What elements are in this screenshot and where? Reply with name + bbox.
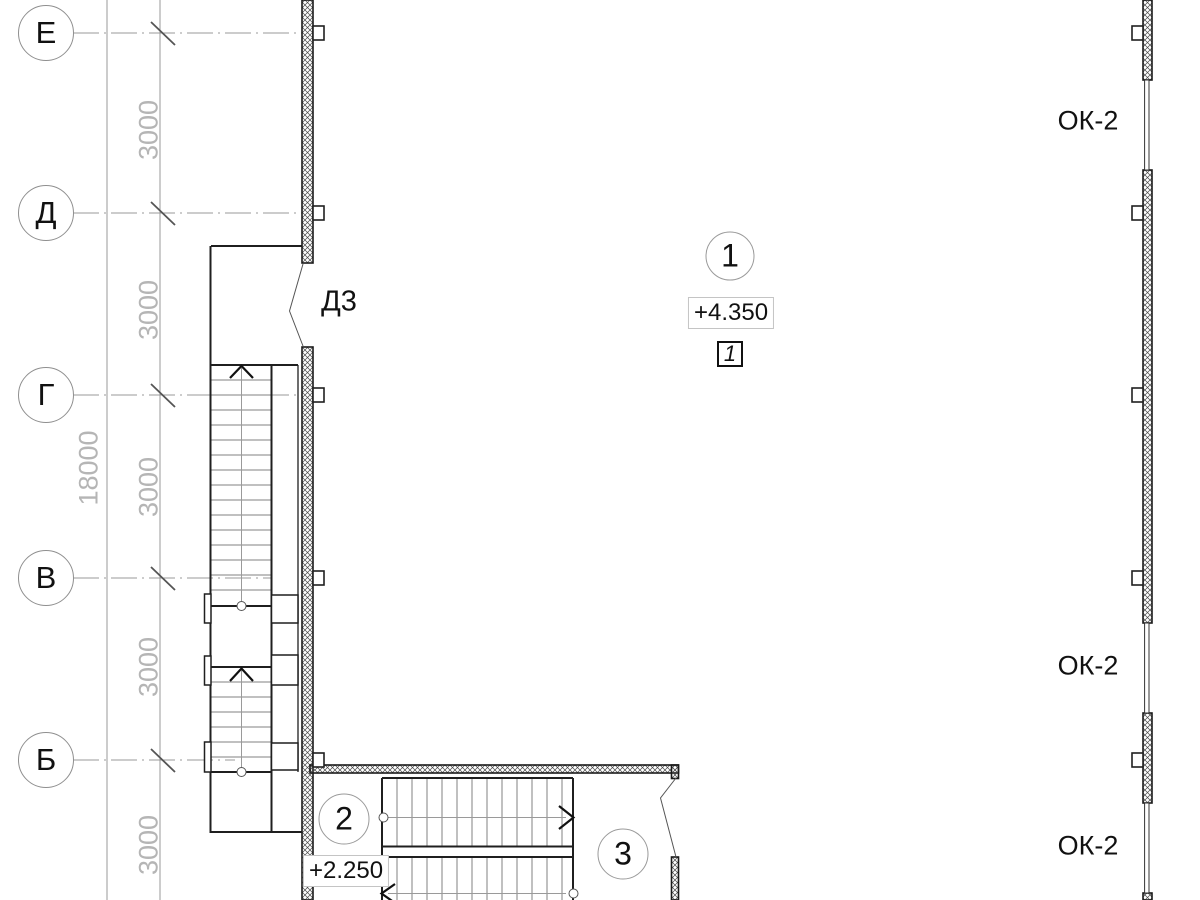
grid-axis-label: Б [36,742,56,778]
room-number: 1 [721,238,739,275]
bottom-wall-hook [672,765,679,779]
right-wall-seg1 [1143,0,1152,80]
level-mark: +2.250 [303,855,389,887]
level-mark: +4.350 [688,297,774,329]
left-wall-upper [302,0,313,263]
landing-pilaster [205,742,212,772]
stair-treads-layer [211,380,562,900]
grid-axis-bubble: Е [18,5,74,61]
grid-axis-bubble: В [18,550,74,606]
column-tab [1132,206,1143,220]
room-number-circle: 2 [319,794,370,845]
grid-axis-label: Е [36,15,57,51]
column-tab [313,753,324,767]
stair-pivot-circle [379,813,388,822]
landing-pilaster [272,595,299,623]
column-tab [313,206,324,220]
room-number: 2 [335,801,353,838]
right-wall-seg3 [1143,713,1152,803]
grid-axis-label: Г [38,377,55,413]
right-wall-seg2 [1143,170,1152,623]
window-glazing [1145,623,1149,713]
floor-plan-linework [0,0,1200,900]
window-glazing [1145,80,1149,170]
column-tab [1132,571,1143,585]
segment-dimension: 3000 [134,637,165,697]
grid-axis-bubble: Д [18,185,74,241]
outline-layer [205,246,574,900]
column-tab [313,26,324,40]
landing-pilaster [205,656,212,685]
landing-pilaster [272,743,299,770]
room-number: 3 [614,836,632,873]
symbols-layer [230,264,676,900]
window-label: ОК-2 [1058,651,1119,682]
stair-pivot-circle [237,768,246,777]
walls-layer [302,0,1152,900]
room-number-circle: 3 [598,829,649,880]
segment-dimension: 3000 [134,815,165,875]
landing-pilaster [272,655,299,685]
window-glazing [1145,803,1149,893]
stair-pivot-circle [569,889,578,898]
column-tab [1132,388,1143,402]
landing-pilaster [205,594,212,623]
left-wall-lower [302,347,313,900]
window-label: ОК-2 [1058,831,1119,862]
grid-axis-label: Д [36,195,57,231]
column-tab [1132,26,1143,40]
grid-axis-bubble: Б [18,732,74,788]
detail-mark: 1 [717,341,743,367]
total-dimension: 18000 [74,430,105,505]
column-tab [1132,753,1143,767]
segment-dimension: 3000 [134,457,165,517]
window-label: ОК-2 [1058,106,1119,137]
room-number-circle: 1 [706,232,755,281]
door-label: Д3 [321,286,357,319]
bottom-wall [310,765,679,773]
segment-dimension: 3000 [134,280,165,340]
grid-axis-bubble: Г [18,367,74,423]
column-tab [313,571,324,585]
column-tab [313,388,324,402]
stair-pivot-circle [237,602,246,611]
grid-axis-label: В [36,560,57,596]
door-d3-leaf [290,264,304,346]
right-wall-seg4 [1143,893,1152,900]
door-bottom-leaf [661,778,677,857]
segment-dimension: 3000 [134,100,165,160]
bottom-right-wall [672,857,679,900]
floor-plan-canvas: Е Д Г В Б 3000 3000 3000 3000 3000 18000… [0,0,1200,900]
